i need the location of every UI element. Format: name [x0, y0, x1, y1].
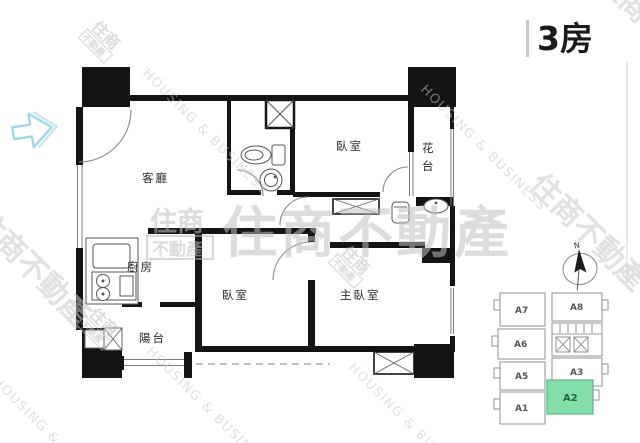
- watermark-en-5: HOUSING & BUSINESS: [0, 374, 121, 443]
- room-label-kitchen: 廚房: [127, 260, 154, 274]
- watermark-en-3: HOUSING & BUSINESS: [143, 344, 275, 443]
- watermark-brand-right: 住商不動產: [522, 167, 640, 298]
- header-bar: [526, 20, 529, 57]
- unit-type-label: 3房: [537, 19, 593, 58]
- floor-plan-image: 客廳 廚房 陽台 臥室 臥室 主臥室 花 台 3房 N: [0, 0, 640, 443]
- unit-label-a8: A8: [570, 303, 583, 313]
- room-label-flower-bed-1: 花: [422, 141, 436, 155]
- floor-plan-svg: 客廳 廚房 陽台 臥室 臥室 主臥室 花 台 3房 N: [0, 0, 640, 443]
- entrance-arrow-icon: [10, 109, 59, 151]
- room-label-bedroom-top: 臥室: [336, 139, 363, 153]
- watermark-logo-box-1: 住商 不動產: [78, 16, 125, 63]
- room-label-flower-bed-2: 台: [422, 159, 436, 173]
- watermark-brand-topright: 住商不動產: [590, 0, 640, 94]
- unit-label-a3: A3: [570, 368, 583, 378]
- watermark-logo-top: 住商: [150, 206, 204, 238]
- room-label-living-room: 客廳: [142, 171, 169, 185]
- unit-label-a5: A5: [515, 372, 528, 382]
- unit-label-a1: A1: [515, 404, 528, 414]
- unit-key-diagram: A7 A6 A5 A1 A8 A3 A2: [492, 293, 608, 424]
- room-label-bedroom-bottom: 臥室: [222, 288, 249, 302]
- unit-label-a6: A6: [514, 340, 527, 350]
- unit-label-a2: A2: [563, 393, 578, 404]
- watermark-brand-center: 住商不動產: [222, 201, 512, 265]
- watermark-logo-center: 住商 不動產: [147, 206, 213, 260]
- room-label-balcony: 陽台: [139, 331, 166, 345]
- room-label-master-bedroom: 主臥室: [340, 288, 381, 302]
- watermark-logo-bottom: 不動產: [152, 239, 203, 260]
- unit-type-header: 3房: [526, 19, 593, 58]
- unit-label-a7: A7: [515, 306, 528, 316]
